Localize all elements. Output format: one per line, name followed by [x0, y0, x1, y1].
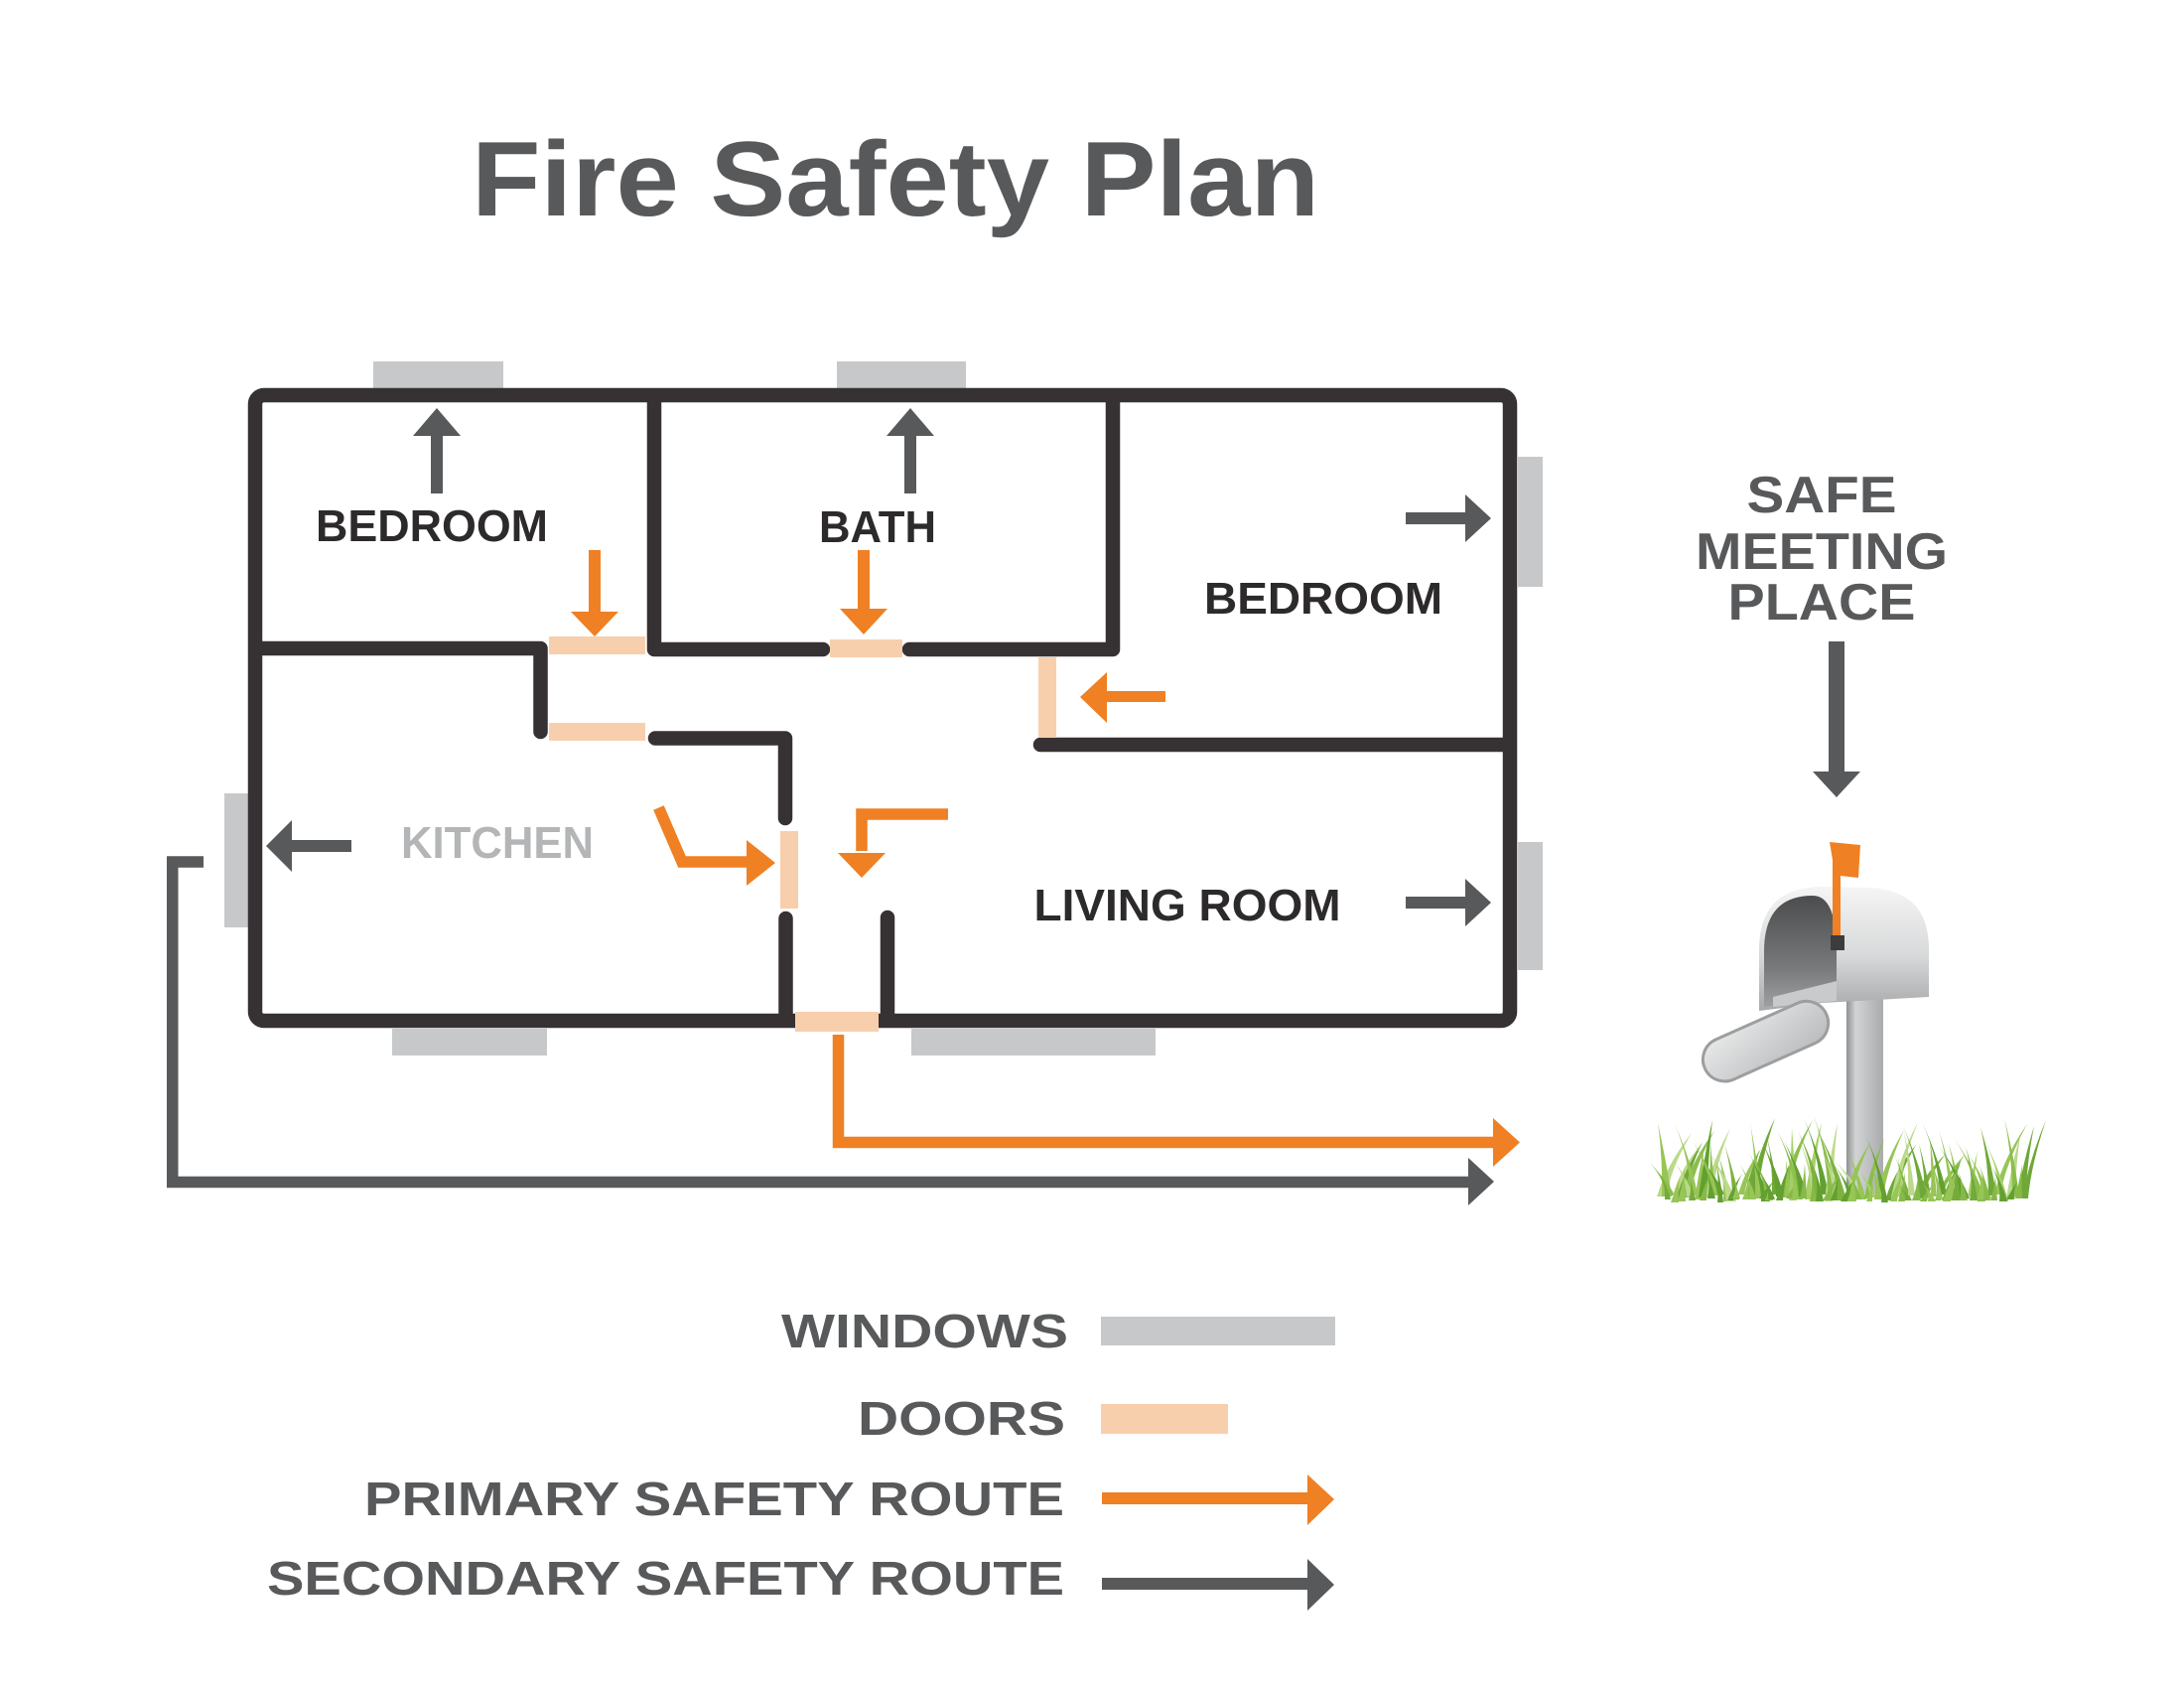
svg-text:PLACE: PLACE: [1728, 574, 1916, 632]
svg-text:DOORS: DOORS: [858, 1393, 1065, 1446]
svg-text:BATH: BATH: [819, 501, 936, 552]
svg-text:BEDROOM: BEDROOM: [1204, 573, 1442, 624]
svg-text:MEETING: MEETING: [1696, 523, 1948, 581]
svg-text:WINDOWS: WINDOWS: [781, 1306, 1068, 1358]
svg-text:LIVING ROOM: LIVING ROOM: [1034, 880, 1341, 930]
svg-text:Fire Safety Plan: Fire Safety Plan: [472, 119, 1319, 238]
svg-text:SECONDARY SAFETY ROUTE: SECONDARY SAFETY ROUTE: [267, 1553, 1064, 1606]
svg-text:SAFE: SAFE: [1747, 467, 1897, 524]
svg-text:BEDROOM: BEDROOM: [316, 500, 548, 551]
svg-text:KITCHEN: KITCHEN: [401, 817, 594, 868]
svg-text:PRIMARY SAFETY ROUTE: PRIMARY SAFETY ROUTE: [364, 1474, 1064, 1526]
